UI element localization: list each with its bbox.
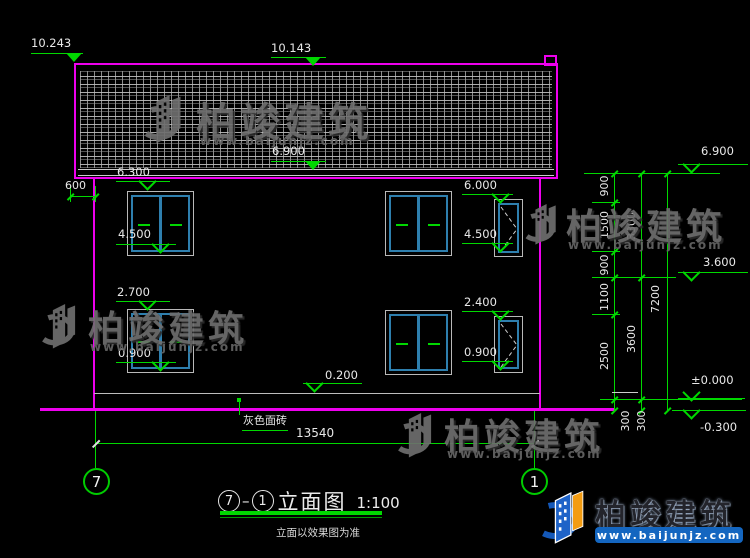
level-triangle [682, 263, 700, 281]
title-dash: – [242, 492, 250, 510]
elevation-drawing-canvas: 10.243 10.143 6.900 6.300 4.500 2.700 0.… [0, 0, 750, 558]
level-triangle [305, 374, 323, 392]
leader-underline [242, 430, 288, 431]
grid-extension-line [95, 411, 96, 468]
watermark-logo-icon [520, 194, 562, 256]
material-label: 灰色面砖 [243, 414, 287, 427]
window-opening-mark [428, 343, 440, 345]
level-roof-ridge: 10.143 [271, 42, 311, 55]
level-0200: 0.200 [325, 369, 358, 382]
dim-line [70, 196, 96, 197]
level-eave-right: 6.900 [701, 145, 734, 158]
level-triangle [305, 57, 321, 66]
window-mullion [417, 314, 420, 371]
level-triangle [682, 155, 700, 173]
watermark: 柏竣建筑 www.baijunjz.com [520, 194, 562, 260]
dim-total-width: 13540 [296, 427, 334, 440]
level-minus-300: -0.300 [700, 421, 737, 434]
watermark-logo-icon [36, 298, 82, 356]
window-opening-mark [170, 224, 182, 226]
level-4500-left: 4.500 [118, 228, 151, 241]
watermark-site: www.baijunjz.com [200, 134, 355, 148]
window-opening-mark [138, 224, 150, 226]
level-3600: 3.600 [703, 256, 736, 269]
footer-logo-icon [536, 487, 592, 547]
level-triangle [682, 401, 700, 419]
grid-bubble-7: 7 [83, 468, 110, 495]
dim-7200: 7200 [650, 277, 662, 321]
dim-1100: 1100 [599, 275, 611, 319]
title-scale: 1:100 [357, 494, 400, 512]
dim-overhang: 600 [65, 179, 86, 192]
footer-logo: 柏竣建筑 www.baijunjz.com [536, 487, 592, 551]
dim-aux-line [612, 392, 638, 393]
level-2400: 2.400 [464, 296, 497, 309]
left-wall-line [93, 179, 95, 409]
level-triangle [66, 53, 82, 62]
window-mid-lower [385, 310, 452, 375]
dim-3600: 3600 [626, 317, 638, 361]
level-0900-mid: 0.900 [464, 346, 497, 359]
plinth-line [94, 393, 540, 394]
title-axis-circle-right: 1 [252, 490, 274, 512]
title-axis-circle-left: 7 [218, 490, 240, 512]
level-6000: 6.000 [464, 179, 497, 192]
window-mid-upper [385, 191, 452, 256]
leader-dot [237, 398, 241, 402]
title-underline [220, 511, 382, 515]
level-roof-left: 10.243 [31, 37, 71, 50]
watermark-logo-icon [138, 90, 188, 150]
dim-300: 300 [636, 399, 648, 443]
dim-2500: 2500 [599, 334, 611, 378]
watermark-site: www.baijunjz.com [568, 238, 723, 252]
title-note: 立面以效果图为准 [276, 525, 360, 540]
level-6300: 6.300 [117, 166, 150, 179]
level-2700: 2.700 [117, 286, 150, 299]
watermark: 柏竣建筑 www.baijunjz.com [138, 90, 188, 154]
watermark: 柏竣建筑 www.baijunjz.com [36, 298, 82, 360]
watermark-site: www.baijunjz.com [447, 447, 602, 461]
window-opening-mark [428, 224, 440, 226]
window-opening-mark [396, 343, 408, 345]
window-mullion [417, 195, 420, 252]
dim-tick [664, 407, 671, 414]
footer-logo-site: www.baijunjz.com [595, 527, 743, 543]
watermark-logo-icon [392, 408, 438, 464]
level-zero: ±0.000 [691, 374, 734, 387]
watermark: 柏竣建筑 www.baijunjz.com [392, 408, 438, 468]
dim-300: 300 [620, 399, 632, 443]
window-opening-mark [396, 224, 408, 226]
level-4500-mid: 4.500 [464, 228, 497, 241]
level-triangle [305, 161, 321, 170]
title-underline-thin [220, 517, 382, 518]
watermark-site: www.baijunjz.com [90, 340, 245, 354]
leader-line [239, 401, 240, 415]
